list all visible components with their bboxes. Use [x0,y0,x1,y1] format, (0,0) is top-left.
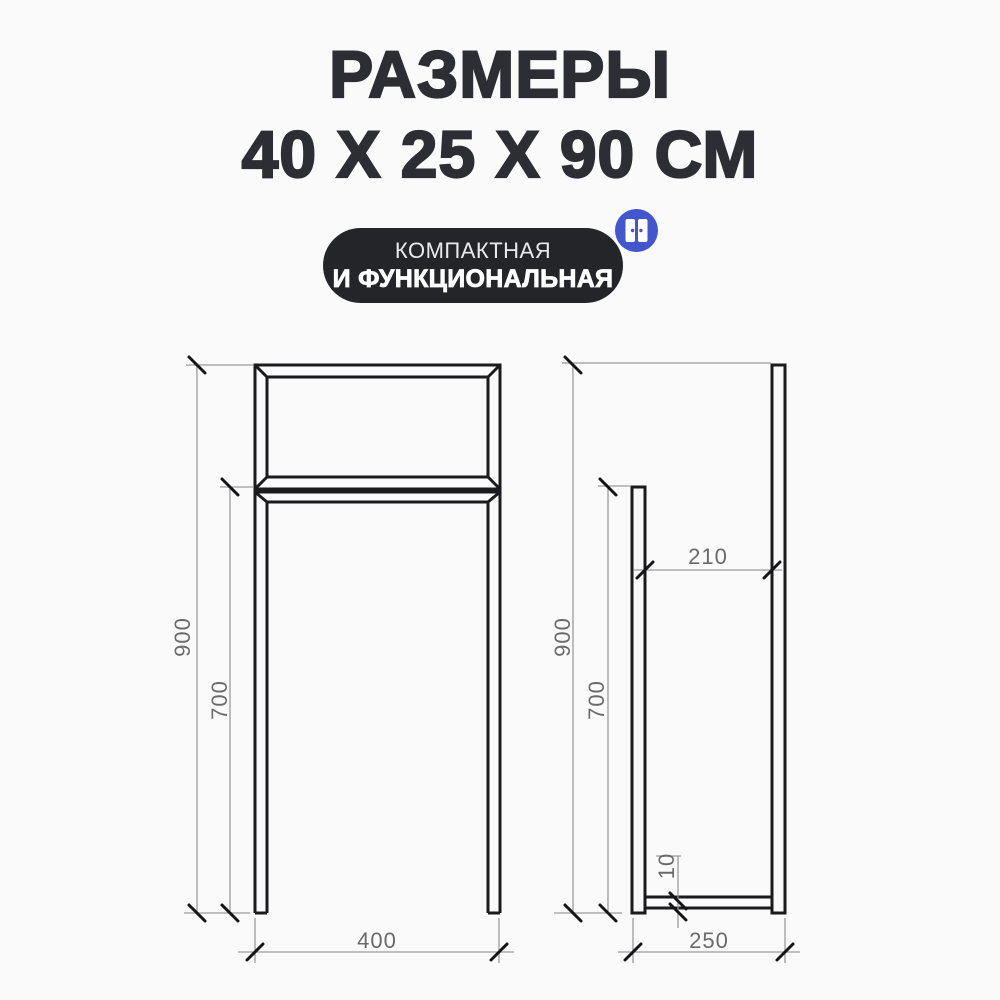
front-view-drawing [255,365,500,913]
side-bar-offset-label: 10 [654,853,679,879]
frame-inner [267,377,488,477]
side-bottom-bar [645,897,772,908]
wardrobe-doors-icon [615,209,658,252]
front-width-label: 400 [357,928,397,953]
icon-circle [615,209,658,252]
side-post-height-label: 700 [584,680,609,720]
dimension-ticks [189,357,793,960]
badge-line-2: И ФУНКЦИОНАЛЬНАЯ [333,265,614,294]
side-depth-label: 250 [689,928,729,953]
frame-miter-bl [255,477,267,489]
dimension-lines [184,363,800,963]
front-leg-height-label: 700 [207,680,232,720]
side-inner-gap-label: 210 [688,544,728,569]
product-dimensions-card: РАЗМЕРЫ 40 Х 25 Х 90 СМ КОМПАКТНАЯ И ФУН… [0,0,1000,1000]
side-front-post [632,487,645,913]
dimension-drawing: 900 700 400 900 700 210 10 250 [0,0,1000,1000]
frame-outer [255,365,500,489]
badge-line-1: КОМПАКТНАЯ [395,238,551,264]
feature-badge: КОМПАКТНАЯ И ФУНКЦИОНАЛЬНАЯ [323,228,623,303]
frame-miter-tr [488,365,500,377]
frame-miter-br [488,477,500,489]
right-door-handle [639,229,642,232]
side-view-drawing [632,365,785,913]
frame-miter-tl [255,365,267,377]
side-back-post [772,365,785,913]
left-door-handle [631,229,634,232]
front-height-label: 900 [170,617,195,657]
side-height-label: 900 [550,617,575,657]
